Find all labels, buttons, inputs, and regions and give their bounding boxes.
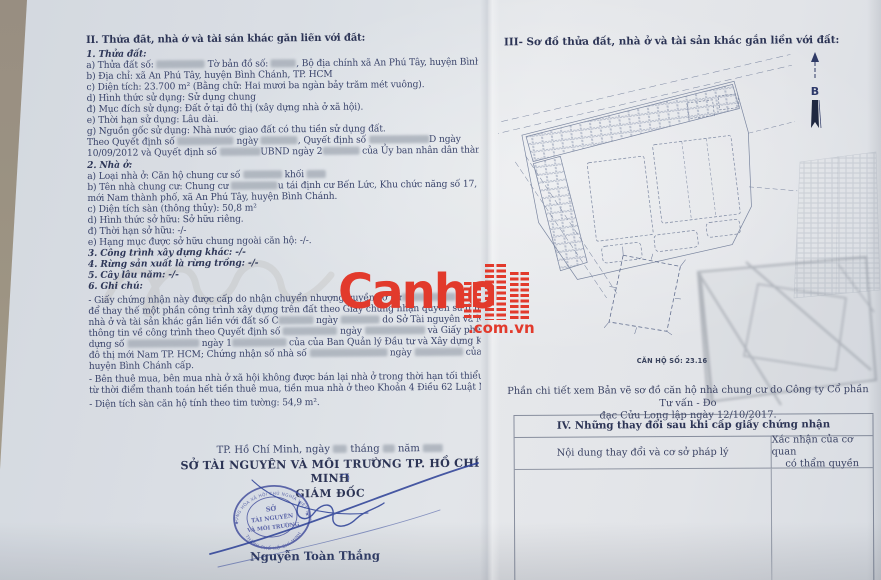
section-ii-text: II. Thửa đất, nhà ở và tài sản khác gắn …	[86, 32, 481, 410]
changes-table-empty-rows	[515, 468, 874, 580]
changes-col1-header: Nội dung thay đổi và cơ sở pháp lý	[515, 437, 772, 469]
north-arrow-icon: B	[800, 50, 830, 135]
signature-block: TP. Hồ Chí Minh, ngày tháng năm SỞ TÀI N…	[160, 443, 500, 502]
apartment-number-label: CĂN HỘ SỐ: 23.16	[612, 357, 732, 365]
document-photo: II. Thửa đất, nhà ở và tài sản khác gắn …	[0, 0, 881, 580]
changes-table: IV. Những thay đổi sau khi cấp giấy chứn…	[513, 413, 874, 580]
signer-name: Nguyễn Toàn Thắng	[210, 548, 420, 564]
place-date-line: TP. Hồ Chí Minh, ngày tháng năm	[160, 443, 500, 457]
agency-name: SỞ TÀI NGUYÊN VÀ MÔI TRƯỜNG TP. HỒ CHÍ M…	[160, 456, 500, 487]
official-seal: CỘNG HÒA XÃ HỘI CHỦ NGHĨA VIỆT NAM THÀNH…	[222, 475, 322, 560]
changes-col2-header: Xác nhận của cơ quan có thẩm quyền	[772, 436, 873, 468]
north-label: B	[811, 85, 819, 98]
caption-line1: Phần chi tiết xem Bản vẽ sơ đồ căn hộ nh…	[502, 384, 874, 411]
apartment-unit-diagram	[582, 242, 712, 362]
